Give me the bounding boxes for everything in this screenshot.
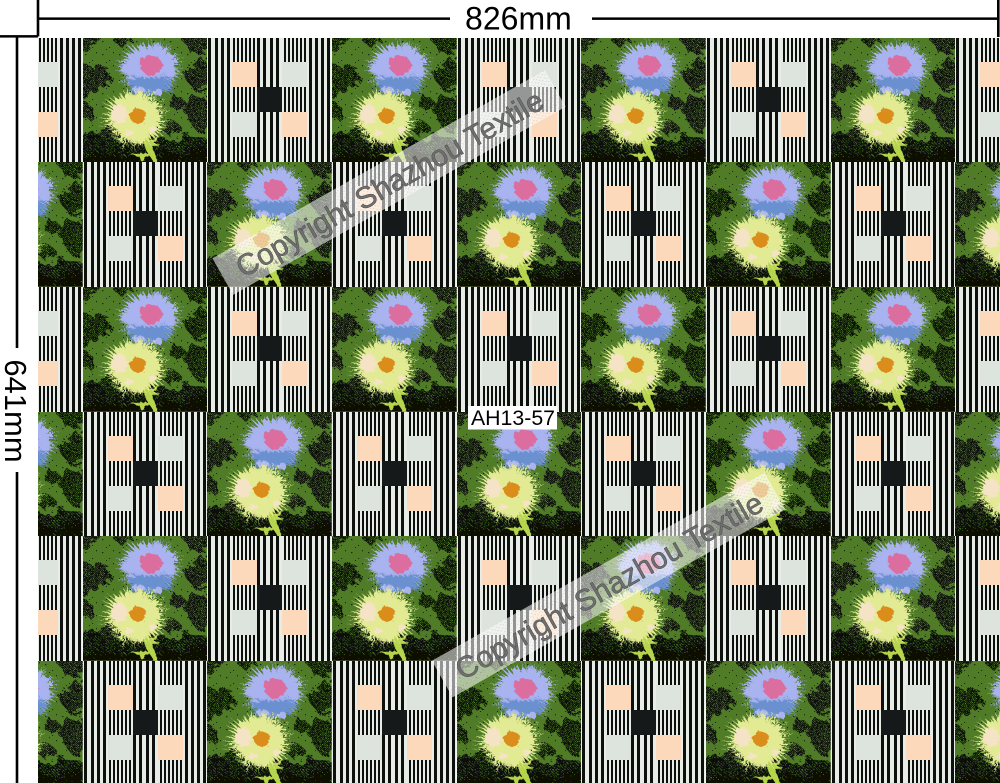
svg-text:826mm: 826mm <box>465 0 572 36</box>
svg-text:AH13-57: AH13-57 <box>471 406 555 430</box>
svg-text:641mm: 641mm <box>0 359 33 462</box>
